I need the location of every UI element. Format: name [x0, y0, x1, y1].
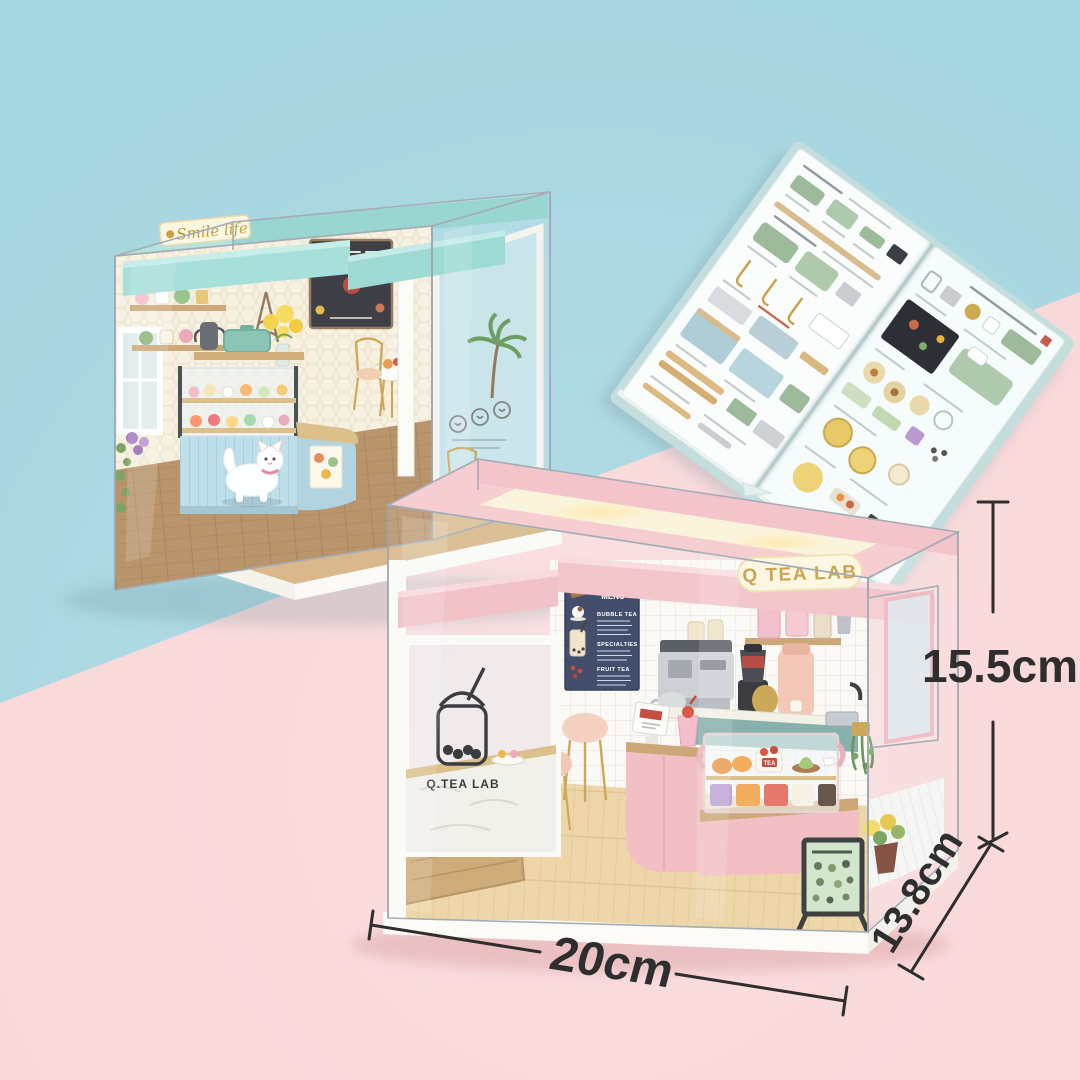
tea-lab-shop: TEA LAB MENU BUBBLE TEA SPECIALTIES FRUI… — [350, 459, 958, 973]
dimension-height-label: 15.5cm — [922, 640, 1078, 692]
pink-acrylic-box — [388, 459, 958, 932]
product-photo-miniature-dollhouse: Smile life — [0, 0, 1080, 1080]
scene-canvas: Smile life — [0, 0, 1080, 1080]
pink-acrylic-front — [388, 505, 868, 932]
